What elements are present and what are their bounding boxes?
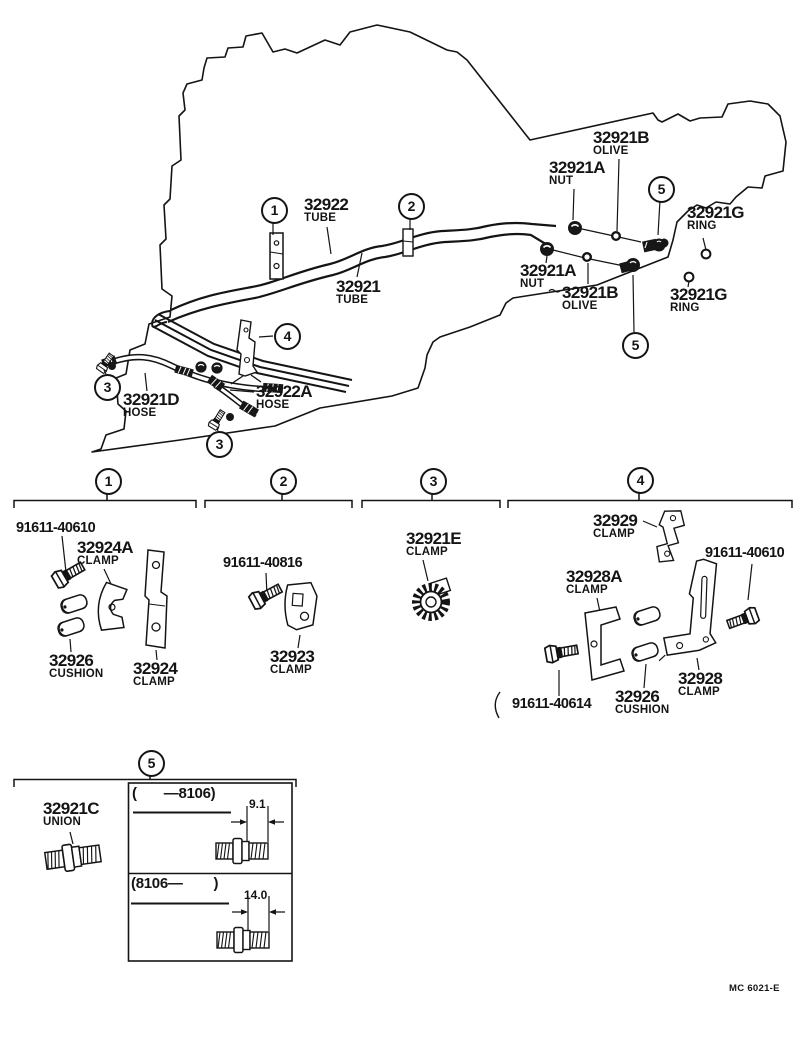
part-desc: CLAMP (406, 547, 461, 558)
label-32921b-olive-top: 32921B OLIVE (593, 130, 649, 157)
label-32921c-union: 32921C UNION (43, 801, 99, 828)
callout-5-bottom: 5 (622, 332, 649, 359)
part-desc: RING (670, 303, 727, 314)
callout-3-bottom: 3 (206, 431, 233, 458)
part-desc: CUSHION (49, 669, 103, 680)
part-number: 32922 (304, 197, 348, 212)
label-32926-cushion-s1: 32926 CUSHION (49, 653, 103, 680)
part-number: 32921A (520, 263, 576, 278)
variant-dim-early: 9.1 (249, 798, 266, 810)
ring-icon (702, 250, 711, 259)
engine-outline (92, 25, 786, 718)
label-32921-tube: 32921 TUBE (336, 279, 380, 306)
part-number: 32928 (678, 671, 722, 686)
part-desc: CUSHION (615, 705, 669, 716)
plate-clamp-icon (145, 550, 167, 648)
label-32921d-hose: 32921D HOSE (123, 392, 179, 419)
doc-code: MC 6021-E (729, 984, 780, 994)
union-icon (44, 840, 102, 874)
parts-diagram-page: 1 2 5 4 3 3 5 1 2 3 4 5 32922 TUBE 32921… (0, 0, 800, 1052)
olive-icon (612, 232, 620, 240)
part-number: 32921G (670, 287, 727, 302)
section3-header: 3 (420, 468, 447, 495)
part-number: 32921 (336, 279, 380, 294)
label-32921b-olive-low: 32921B OLIVE (562, 285, 618, 312)
small-bracket-icon (655, 509, 685, 564)
part-desc: HOSE (123, 408, 179, 419)
label-bolt-91611-40610-s4: 91611-40610 (705, 546, 784, 561)
callout-1-tube: 1 (261, 197, 288, 224)
part-desc: TUBE (336, 295, 380, 306)
part-desc: CLAMP (133, 677, 177, 688)
label-32926-cushion-s4: 32926 CUSHION (615, 689, 669, 716)
cushion-icon (59, 593, 88, 614)
diagram-line-art (0, 0, 800, 1052)
nut-icon (195, 361, 206, 372)
part-number: 32926 (49, 653, 103, 668)
part-number: 32921B (593, 130, 649, 145)
part-desc: OLIVE (593, 146, 649, 157)
saddle-clamp-icon (96, 582, 128, 633)
union-fitting-icon (642, 239, 668, 253)
label-32921e-clamp: 32921E CLAMP (406, 531, 461, 558)
part-number: 91611-40614 (512, 697, 591, 712)
section1-header: 1 (95, 468, 122, 495)
section4-header: 4 (627, 467, 654, 494)
label-32921g-ring-top: 32921G RING (687, 205, 744, 232)
nut-icon (211, 362, 222, 373)
label-32928-clamp: 32928 CLAMP (678, 671, 722, 698)
cushion-icon (632, 605, 661, 626)
nut-icon (568, 221, 582, 235)
part-desc: RING (687, 221, 744, 232)
label-32921a-nut-top: 32921A NUT (549, 160, 605, 187)
part-desc: CLAMP (678, 687, 722, 698)
variant-range-late: (8106— ) (131, 876, 218, 892)
label-32922a-hose: 32922A HOSE (256, 384, 312, 411)
label-bolt-91611-40614: 91611-40614 (512, 697, 591, 712)
part-desc: UNION (43, 817, 99, 828)
label-32923-clamp: 32923 CLAMP (270, 649, 314, 676)
tall-bracket-icon (659, 558, 719, 663)
part-number: 32921A (549, 160, 605, 175)
union-icon (217, 928, 269, 953)
nut-icon (226, 413, 234, 421)
cushion-icon (56, 616, 85, 637)
callout-4-bracket: 4 (274, 323, 301, 350)
variant-range-early: ( —8106) (132, 786, 215, 802)
part-desc: HOSE (256, 400, 312, 411)
part-desc: NUT (549, 176, 605, 187)
label-32924-clamp: 32924 CLAMP (133, 661, 177, 688)
part-number: 32923 (270, 649, 314, 664)
callout-5-top: 5 (648, 176, 675, 203)
union-icon (216, 839, 268, 864)
bolt-icon (544, 641, 578, 664)
part-number: 32921D (123, 392, 179, 407)
part-number: 32921C (43, 801, 99, 816)
part-number: 32922A (256, 384, 312, 399)
label-32921g-ring-low: 32921G RING (670, 287, 727, 314)
part-number: 32921B (562, 285, 618, 300)
label-bolt-91611-40610-s1: 91611-40610 (16, 521, 95, 536)
section5-header: 5 (138, 750, 165, 777)
channel-clamp-icon (585, 607, 624, 680)
part-desc: OLIVE (562, 301, 618, 312)
part-number: 32924A (77, 540, 133, 555)
union-fitting-icon (619, 258, 640, 273)
callout-3-left: 3 (94, 374, 121, 401)
part-number: 91611-40610 (705, 546, 784, 561)
part-number: 32926 (615, 689, 669, 704)
label-32922-tube: 32922 TUBE (304, 197, 348, 224)
section3-parts (416, 578, 450, 617)
label-32929-clamp: 32929 CLAMP (593, 513, 637, 540)
part-number: 91611-40816 (223, 556, 302, 571)
box-clamp-icon (283, 581, 318, 631)
ring-icon (685, 273, 694, 282)
tube-clamps (231, 229, 413, 384)
part-desc: TUBE (304, 213, 348, 224)
nut-icon (540, 242, 554, 256)
star-clamp-icon (416, 578, 450, 617)
label-32928a-clamp: 32928A CLAMP (566, 569, 622, 596)
bolt-icon (725, 606, 760, 632)
label-bolt-91611-40816: 91611-40816 (223, 556, 302, 571)
part-desc: CLAMP (566, 585, 622, 596)
bolt-icon (207, 408, 227, 431)
part-number: 91611-40610 (16, 521, 95, 536)
cushion-icon (630, 641, 659, 662)
part-number: 32928A (566, 569, 622, 584)
part-number: 32921E (406, 531, 461, 546)
callout-2-tube: 2 (398, 193, 425, 220)
part-desc: CLAMP (270, 665, 314, 676)
leader-lines (62, 159, 752, 844)
section2-parts (248, 580, 318, 631)
part-number: 32929 (593, 513, 637, 528)
variant-dim-late: 14.0 (244, 889, 267, 901)
label-32924a-clamp: 32924A CLAMP (77, 540, 133, 567)
section2-header: 2 (270, 468, 297, 495)
part-desc: CLAMP (593, 529, 637, 540)
olive-icon (583, 253, 591, 261)
part-number: 32924 (133, 661, 177, 676)
part-number: 32921G (687, 205, 744, 220)
part-desc: CLAMP (77, 556, 133, 567)
